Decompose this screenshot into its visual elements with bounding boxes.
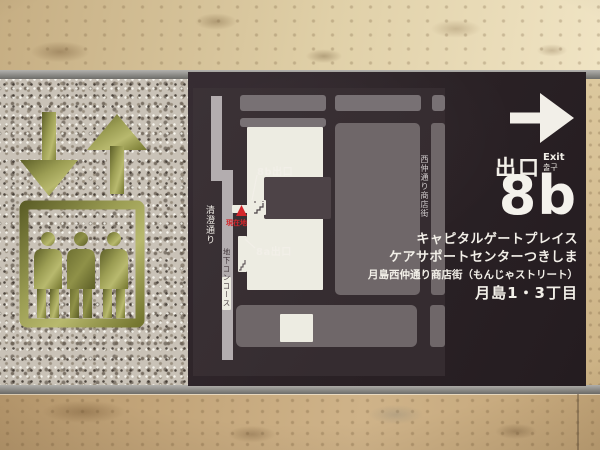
photo-scene: 8b出口 8a出口 現在地 清澄通り 地下コンコース 西仲通り商店街 出口 Ex…	[0, 0, 600, 450]
up-arrow-icon	[87, 114, 147, 194]
map-label-exit-8b: 8b出口	[257, 163, 293, 178]
leader-line-8a	[245, 239, 255, 248]
map-label-exit-8a: 8a出口	[256, 243, 292, 258]
wall-tile-right	[586, 79, 600, 385]
map-label-underground-concourse: 地下コンコース	[221, 248, 232, 308]
wall-tile-bottom	[0, 394, 600, 450]
map-label-kiyosumi-street: 清澄通り	[203, 205, 216, 245]
station-map: 8b出口 8a出口 現在地 清澄通り 地下コンコース 西仲通り商店街	[193, 88, 445, 376]
person-figure-left	[34, 232, 62, 318]
metal-trim-bottom	[0, 385, 600, 394]
map-label-nishinaka-street: 西仲通り商店街	[419, 155, 430, 218]
exit-number: 8b	[499, 168, 577, 224]
wall-tile-top	[0, 0, 600, 72]
person-figure-right	[100, 232, 128, 318]
stairs-icon-8a	[239, 260, 245, 270]
map-overlay	[193, 88, 445, 376]
person-figure-middle	[67, 232, 95, 318]
tile-grout-seam	[577, 394, 579, 450]
down-arrow-icon	[20, 112, 78, 196]
exit-word-english: Exit	[543, 152, 567, 163]
right-arrow-icon	[508, 93, 574, 143]
leader-line-8b	[252, 175, 257, 200]
map-label-you-are-here: 現在地	[226, 218, 247, 228]
exit-sign-panel: 8b出口 8a出口 現在地 清澄通り 地下コンコース 西仲通り商店街 出口 Ex…	[188, 72, 586, 386]
stairs-icon-8b	[254, 201, 263, 213]
you-are-here-triangle-icon	[236, 205, 247, 216]
elevator-people-icon	[14, 106, 154, 334]
